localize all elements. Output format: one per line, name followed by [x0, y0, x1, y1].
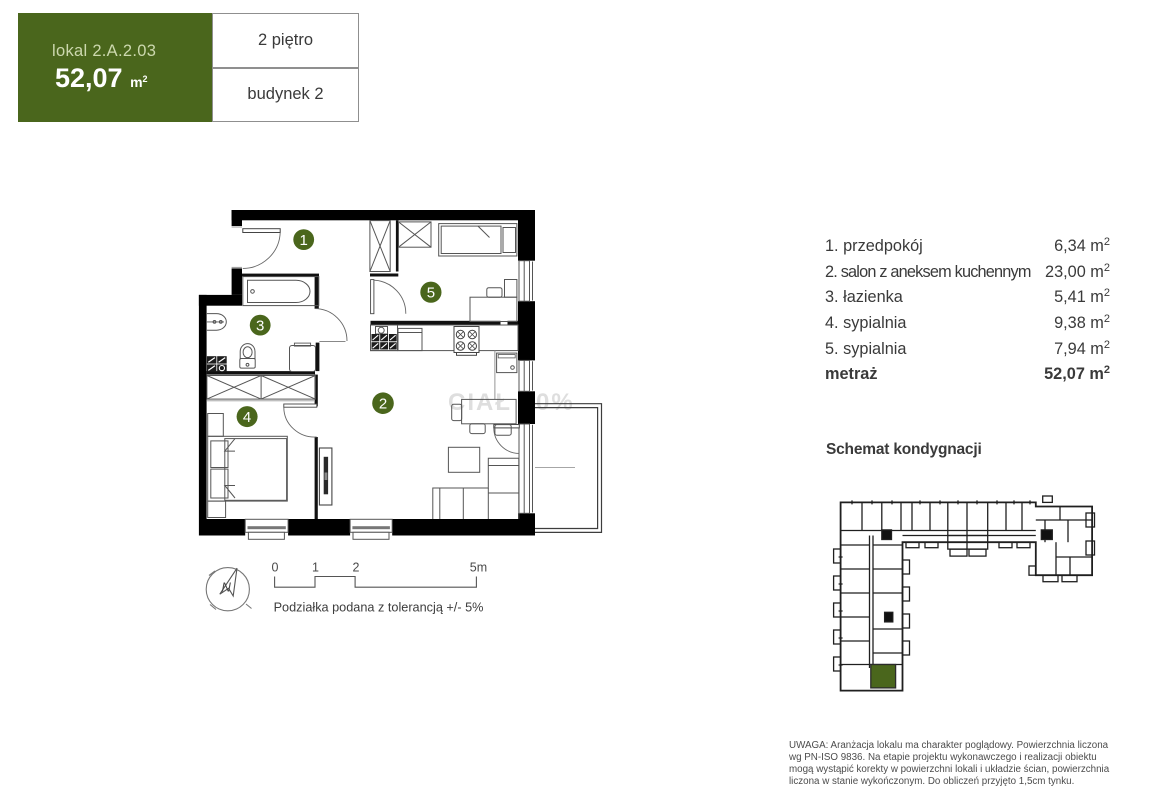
svg-text:1: 1	[300, 232, 308, 249]
svg-text:CIAŁ 10%: CIAŁ 10%	[448, 389, 575, 416]
svg-text:4: 4	[243, 409, 251, 426]
svg-text:N: N	[222, 580, 232, 595]
svg-text:3: 3	[256, 318, 264, 335]
svg-text:2: 2	[379, 396, 387, 413]
svg-text:Podziałka podana z tolerancją: Podziałka podana z tolerancją +/- 5%	[274, 601, 484, 615]
svg-text:2: 2	[353, 561, 360, 575]
svg-text:5m: 5m	[470, 561, 487, 575]
svg-text:5: 5	[427, 285, 435, 302]
svg-text:1: 1	[312, 561, 319, 575]
svg-text:0: 0	[272, 561, 279, 575]
